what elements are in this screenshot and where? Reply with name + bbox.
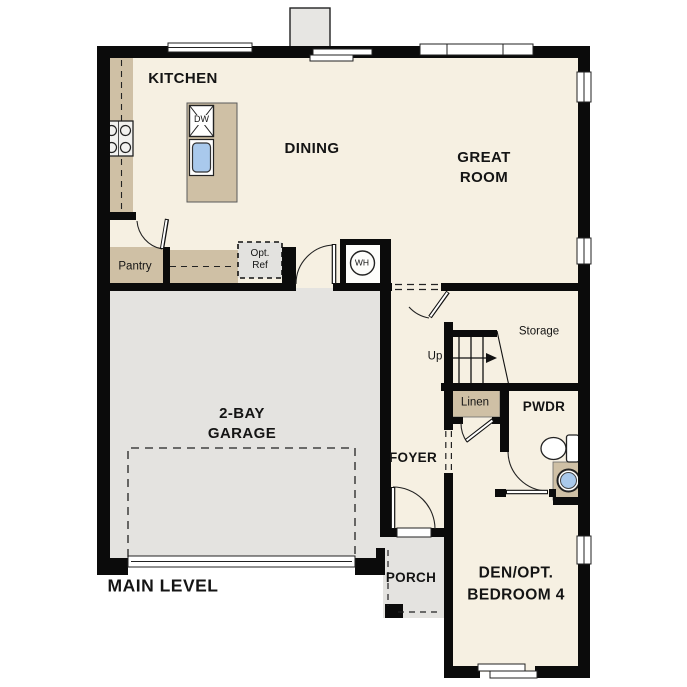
den-label: DEN/OPT. BEDROOM 4 [467, 563, 564, 608]
dining-label: DINING [285, 139, 340, 159]
toilet-icon [541, 435, 579, 462]
great-room-label: GREAT ROOM [457, 148, 510, 188]
powder-left-wall [500, 383, 509, 452]
stairs-up-label: Up [428, 349, 443, 364]
front-door-opening [397, 528, 431, 537]
opt-ref-label: Opt. Ref [251, 248, 270, 272]
garage-door [128, 556, 355, 567]
foyer-label: FOYER [389, 449, 437, 467]
den-bottom-window [478, 664, 525, 671]
chimney [290, 8, 330, 50]
kitchen-sink-icon [190, 140, 214, 176]
floor-plan: KITCHEN DINING GREAT ROOM 2-BAY GARAGE D… [0, 0, 687, 687]
vanity-sink-icon [558, 470, 580, 492]
plan-title: MAIN LEVEL [108, 574, 219, 597]
exterior-wall-left [97, 46, 110, 575]
porch-label: PORCH [386, 569, 436, 587]
linen-label: Linen [461, 395, 489, 410]
storage-label: Storage [519, 324, 559, 339]
great-room-window [420, 44, 533, 55]
floor-plan-drawing [0, 0, 687, 687]
water-heater-label: WH [355, 257, 369, 268]
den-left-wall [444, 473, 453, 678]
garage-label: 2-BAY GARAGE [208, 404, 276, 444]
stairs-top-wall [444, 330, 497, 337]
powder-label: PWDR [523, 398, 565, 416]
pantry-label: Pantry [118, 259, 151, 274]
kitchen-label: KITCHEN [148, 69, 217, 89]
exterior-wall-right [578, 46, 590, 678]
dishwasher-label: DW [193, 115, 210, 125]
